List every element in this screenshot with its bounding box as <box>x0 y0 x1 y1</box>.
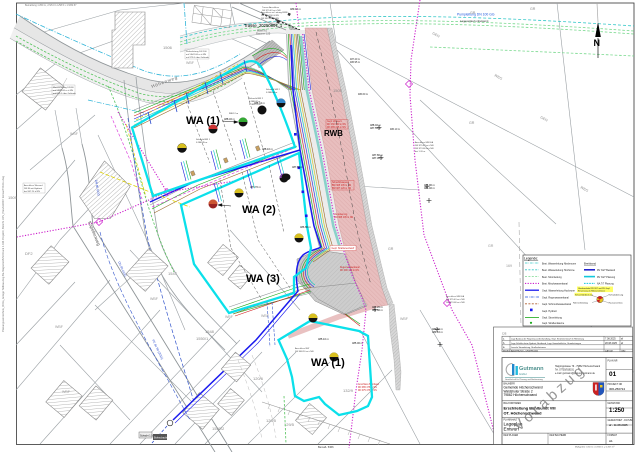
svg-text:WA (1): WA (1) <box>186 115 220 127</box>
svg-text:Pumpleitung DN 100 GG: Pumpleitung DN 100 GG <box>457 13 495 17</box>
svg-text:Breitband: Breitband <box>584 261 596 265</box>
svg-text:DN 965 478 m NN: DN 965 478 m NN <box>358 387 377 389</box>
svg-text:Best. Wasserleitung Niederzone: Best. Wasserleitung Niederzone <box>542 262 577 265</box>
svg-text:Best. Wasserleitung Hochzone: Best. Wasserleitung Hochzone <box>542 269 575 272</box>
svg-text:485.00 m: 485.00 m <box>352 341 363 345</box>
svg-text:S 986.85 m: S 986.85 m <box>196 142 207 144</box>
svg-text:1506: 1506 <box>163 45 173 50</box>
svg-text:488.32 m: 488.32 m <box>224 117 235 121</box>
svg-text:PLAN NR: PLAN NR <box>608 360 618 363</box>
svg-text:GEZEICHNET - DATUM: GEZEICHNET - DATUM <box>608 419 633 422</box>
svg-text:mit 973.0 über Gelände: mit 973.0 über Gelände <box>186 56 210 59</box>
svg-text:GR: GR <box>470 11 476 15</box>
svg-text:Gepl. Schmutzwasserkanal: Gepl. Schmutzwasserkanal <box>542 303 571 306</box>
svg-text:af - 11.08.2025: af - 11.08.2025 <box>609 423 628 427</box>
svg-text:487.90 m: 487.90 m <box>292 165 303 169</box>
svg-text:Gepl. Hydrant: Gepl. Hydrant <box>542 310 557 313</box>
svg-text:DER BAUHERR: DER BAUHERR <box>550 434 567 437</box>
svg-text:GR: GR <box>388 247 394 251</box>
svg-text:Schacht RW 1: Schacht RW 1 <box>196 138 211 141</box>
svg-text:7.08.2025: 7.08.2025 <box>605 338 616 341</box>
svg-text:mit VB4 160 m ü NN: mit VB4 160 m ü NN <box>186 53 206 56</box>
svg-text:Gepl. Wasserleitung Hochzone: Gepl. Wasserleitung Hochzone <box>542 290 576 293</box>
svg-text:WBF: WBF <box>62 390 71 394</box>
svg-text:C/S: C/S <box>502 332 507 336</box>
svg-text:bei 1.20 m: bei 1.20 m <box>415 151 425 153</box>
svg-text:488.44 m: 488.44 m <box>254 101 265 105</box>
svg-text:Gepl. Regenwasserkanal: Gepl. Regenwasserkanal <box>542 296 569 299</box>
svg-text:Anschluss MW-KA: Anschluss MW-KA <box>446 295 465 298</box>
svg-text:Anschluss RW: Anschluss RW <box>295 347 310 350</box>
svg-text:c.: c. <box>503 338 505 341</box>
svg-text:Wasserleitung DN 80: Wasserleitung DN 80 <box>53 86 74 89</box>
svg-text:Schachtbauwerk: Schachtbauwerk <box>332 181 350 184</box>
svg-text:mit VB4 160 m ü NN: mit VB4 160 m ü NN <box>53 89 73 92</box>
svg-text:484.80 m: 484.80 m <box>372 308 383 312</box>
svg-text:Gepl. Straßenentwurf: Gepl. Straßenentwurf <box>332 247 355 250</box>
svg-text:GmbH: GmbH <box>519 372 527 376</box>
svg-text:1:250: 1:250 <box>609 408 625 414</box>
svg-text:FORMAT: FORMAT <box>608 434 618 437</box>
svg-text:DF2: DF2 <box>25 251 33 256</box>
svg-text:Best. Stromleitung: Best. Stromleitung <box>542 276 562 279</box>
svg-text:b.: b. <box>503 342 505 345</box>
svg-text:PROJEKT NR: PROJEKT NR <box>608 384 623 386</box>
svg-text:1509: 1509 <box>8 195 18 200</box>
svg-text:484.10 m: 484.10 m <box>432 330 443 334</box>
svg-text:Anschluss Breitband: Anschluss Breitband <box>358 383 380 386</box>
svg-text:S 988.44 m: S 988.44 m <box>266 92 277 94</box>
svg-text:486.80 m: 486.80 m <box>300 225 311 229</box>
svg-text:DN 980 980 G NN: DN 980 980 G NN <box>261 18 279 20</box>
svg-text:Schachtabdeckung: Schachtabdeckung <box>575 293 594 296</box>
svg-text:1505: 1505 <box>333 88 343 93</box>
svg-text:Lage Schilder beim Sydrant, Br: Lage Schilder beim Sydrant, Breitband, L… <box>511 342 581 345</box>
svg-text:ÄNDERUNG - URSPRUNG: ÄNDERUNG - URSPRUNG <box>511 349 538 352</box>
svg-text:Lage Ausbau der Regenwasserbeh: Lage Ausbau der Regenwasserbehandlung, G… <box>511 338 584 341</box>
svg-text:Trasse Anschluss: Trasse Anschluss <box>262 6 280 9</box>
svg-text:Gutmann: Gutmann <box>519 366 544 372</box>
svg-text:Planungsverzeichnis_W.Ka_Anlag: Planungsverzeichnis_W.Ka_Anlage Teilbau.… <box>1 175 5 332</box>
svg-text:A1: A1 <box>609 439 613 443</box>
svg-text:DN 975.43 m ü NN: DN 975.43 m ü NN <box>415 145 434 147</box>
svg-text:1550/2: 1550/2 <box>212 426 225 431</box>
svg-text:DATUM: DATUM <box>605 349 613 352</box>
svg-text:DN 80 mit Hydrant: DN 80 mit Hydrant <box>24 187 42 190</box>
svg-text:DN 150 150 m NN: DN 150 150 m NN <box>327 124 346 126</box>
svg-text:WBF: WBF <box>186 61 195 65</box>
svg-text:1550/1: 1550/1 <box>196 336 209 341</box>
svg-text:486.60 m: 486.60 m <box>358 93 368 96</box>
svg-text:RWB: RWB <box>324 129 343 138</box>
svg-text:WA (3): WA (3) <box>246 273 280 285</box>
svg-text:BW 965 135 m NN: BW 965 135 m NN <box>334 217 353 219</box>
svg-text:GR: GR <box>488 244 494 248</box>
svg-text:DN 973.08 m ü NN: DN 973.08 m ü NN <box>446 302 465 304</box>
svg-text:GR: GR <box>469 121 475 125</box>
svg-text:169: 169 <box>506 264 512 268</box>
svg-text:79862 Höchenschwand: 79862 Höchenschwand <box>504 393 538 397</box>
svg-text:DN 968.20 m ü NN: DN 968.20 m ü NN <box>295 351 314 353</box>
svg-text:Versickerung: Versickerung <box>334 213 348 216</box>
svg-text:Reserve 1:25: Reserve 1:25 <box>256 33 271 36</box>
svg-text:DN 900 120 m NN: DN 900 120 m NN <box>340 270 359 272</box>
svg-text:WBF: WBF <box>400 317 409 321</box>
svg-text:01: 01 <box>609 371 617 378</box>
svg-text:486.10 m: 486.10 m <box>390 128 400 131</box>
svg-text:485.10 m: 485.10 m <box>318 337 329 341</box>
svg-text:488.10 m: 488.10 m <box>262 147 273 151</box>
svg-text:WA (2): WA (2) <box>242 204 276 216</box>
svg-text:Sickerleitung DN 100: Sickerleitung DN 100 <box>186 50 207 53</box>
svg-text:WBF: WBF <box>261 314 270 318</box>
svg-text:487.70 m: 487.70 m <box>250 185 261 189</box>
svg-text:28.08.2025: 28.08.2025 <box>605 342 618 345</box>
svg-text:Anschluss Wasserl.: Anschluss Wasserl. <box>24 184 43 187</box>
svg-text:Rohrabdeckung: Rohrabdeckung <box>609 293 625 296</box>
svg-text:Rohrverbindung: Rohrverbindung <box>573 301 589 304</box>
svg-text:Bohrschacht: Bohrschacht <box>154 437 168 440</box>
svg-text:Anschluss MW-KA: Anschluss MW-KA <box>415 141 434 144</box>
svg-text:132/9: 132/9 <box>343 388 354 393</box>
svg-text:Lageverlauf unbekannt: Lageverlauf unbekannt <box>460 19 489 23</box>
svg-text:WBF: WBF <box>150 297 159 301</box>
svg-text:DN 975.43 m ü NN: DN 975.43 m ü NN <box>446 299 465 301</box>
svg-text:GR: GR <box>530 7 536 11</box>
svg-text:Anschluss an Leitung RWB: Anschluss an Leitung RWB <box>261 11 288 14</box>
svg-text:WBF: WBF <box>55 325 64 329</box>
svg-text:Trasse_20250807_1: Trasse_20250807_1 <box>244 23 283 28</box>
svg-text:Best. Mischwasserkanal: Best. Mischwasserkanal <box>542 283 568 286</box>
svg-text:Gesellschaft für Planung und B: Gesellschaft für Planung und Bauberatung <box>505 378 543 381</box>
svg-text:Schacht RW 2: Schacht RW 2 <box>249 97 264 100</box>
svg-text:RV 34/7 Planung: RV 34/7 Planung <box>597 276 616 279</box>
svg-text:mit 973.0 über Gelände: mit 973.0 über Gelände <box>53 92 77 95</box>
svg-text:Hausanschluss: Hausanschluss <box>609 302 623 304</box>
svg-text:DN 973.08 m ü NN: DN 973.08 m ü NN <box>415 148 434 150</box>
svg-text:Gepl. Straßenlaterne: Gepl. Straßenlaterne <box>542 322 565 325</box>
svg-text:1548: 1548 <box>205 329 215 334</box>
svg-text:Schacht SW 2: Schacht SW 2 <box>266 88 281 91</box>
svg-text:NA 7/7 Planung: NA 7/7 Planung <box>597 283 614 286</box>
svg-text:Einweisung als Hebeanschlüsse: Einweisung als Hebeanschlüsse <box>578 291 605 293</box>
svg-text:486.95 m: 486.95 m <box>350 61 360 64</box>
svg-text:120/6: 120/6 <box>253 376 264 381</box>
svg-text:1547: 1547 <box>168 271 178 276</box>
svg-text:988.12 m: 988.12 m <box>229 113 238 115</box>
svg-text:DN 975 478 m NN: DN 975 478 m NN <box>358 390 377 392</box>
svg-text:BW 967 120 m NN: BW 967 120 m NN <box>332 188 351 190</box>
svg-text:WBF: WBF <box>225 315 234 319</box>
svg-text:WBF: WBF <box>70 132 79 136</box>
svg-text:af: af <box>621 342 623 345</box>
svg-text:INDEX: INDEX <box>503 350 510 352</box>
svg-text:Gepl. Wasserl.: Gepl. Wasserl. <box>327 120 342 123</box>
svg-text:Maßgröße: 0.60 m x 0.594 m = 0: Maßgröße: 0.60 m x 0.594 m = 0.357 m² <box>575 446 615 449</box>
svg-text:Bemaß. 5366: Bemaß. 5366 <box>318 445 334 449</box>
svg-text:Bemaßung 1:250 m, 2.5/6.0 1.1/: Bemaßung 1:250 m, 2.5/6.0 1.1/58.5 x 1.5… <box>25 4 77 7</box>
svg-text:af: af <box>621 338 623 341</box>
svg-text:a.: a. <box>503 346 505 349</box>
svg-text:Gepl. Stromleitung: Gepl. Stromleitung <box>542 317 562 320</box>
svg-text:120/5: 120/5 <box>266 418 277 423</box>
svg-text:WA (1): WA (1) <box>311 357 345 369</box>
svg-text:bei 967.20 ü NN: bei 967.20 ü NN <box>24 191 40 193</box>
svg-text:489.10 m: 489.10 m <box>290 7 301 11</box>
svg-text:MASSSTAB: MASSSTAB <box>608 402 621 405</box>
svg-text:DER PLANER: DER PLANER <box>504 434 519 437</box>
svg-text:N: N <box>594 38 601 48</box>
svg-text:RV 34/7 Bestand: RV 34/7 Bestand <box>597 269 616 272</box>
svg-text:Leerohr Stromleitung, Straßenl: Leerohr Stromleitung, Straßenlaternen <box>511 346 546 349</box>
svg-text:306-250724: 306-250724 <box>609 387 625 391</box>
svg-text:Legende:: Legende: <box>524 257 538 261</box>
svg-text:DN 980 780 G NN: DN 980 780 G NN <box>261 15 279 17</box>
svg-text:GEZ: GEZ <box>621 350 626 352</box>
